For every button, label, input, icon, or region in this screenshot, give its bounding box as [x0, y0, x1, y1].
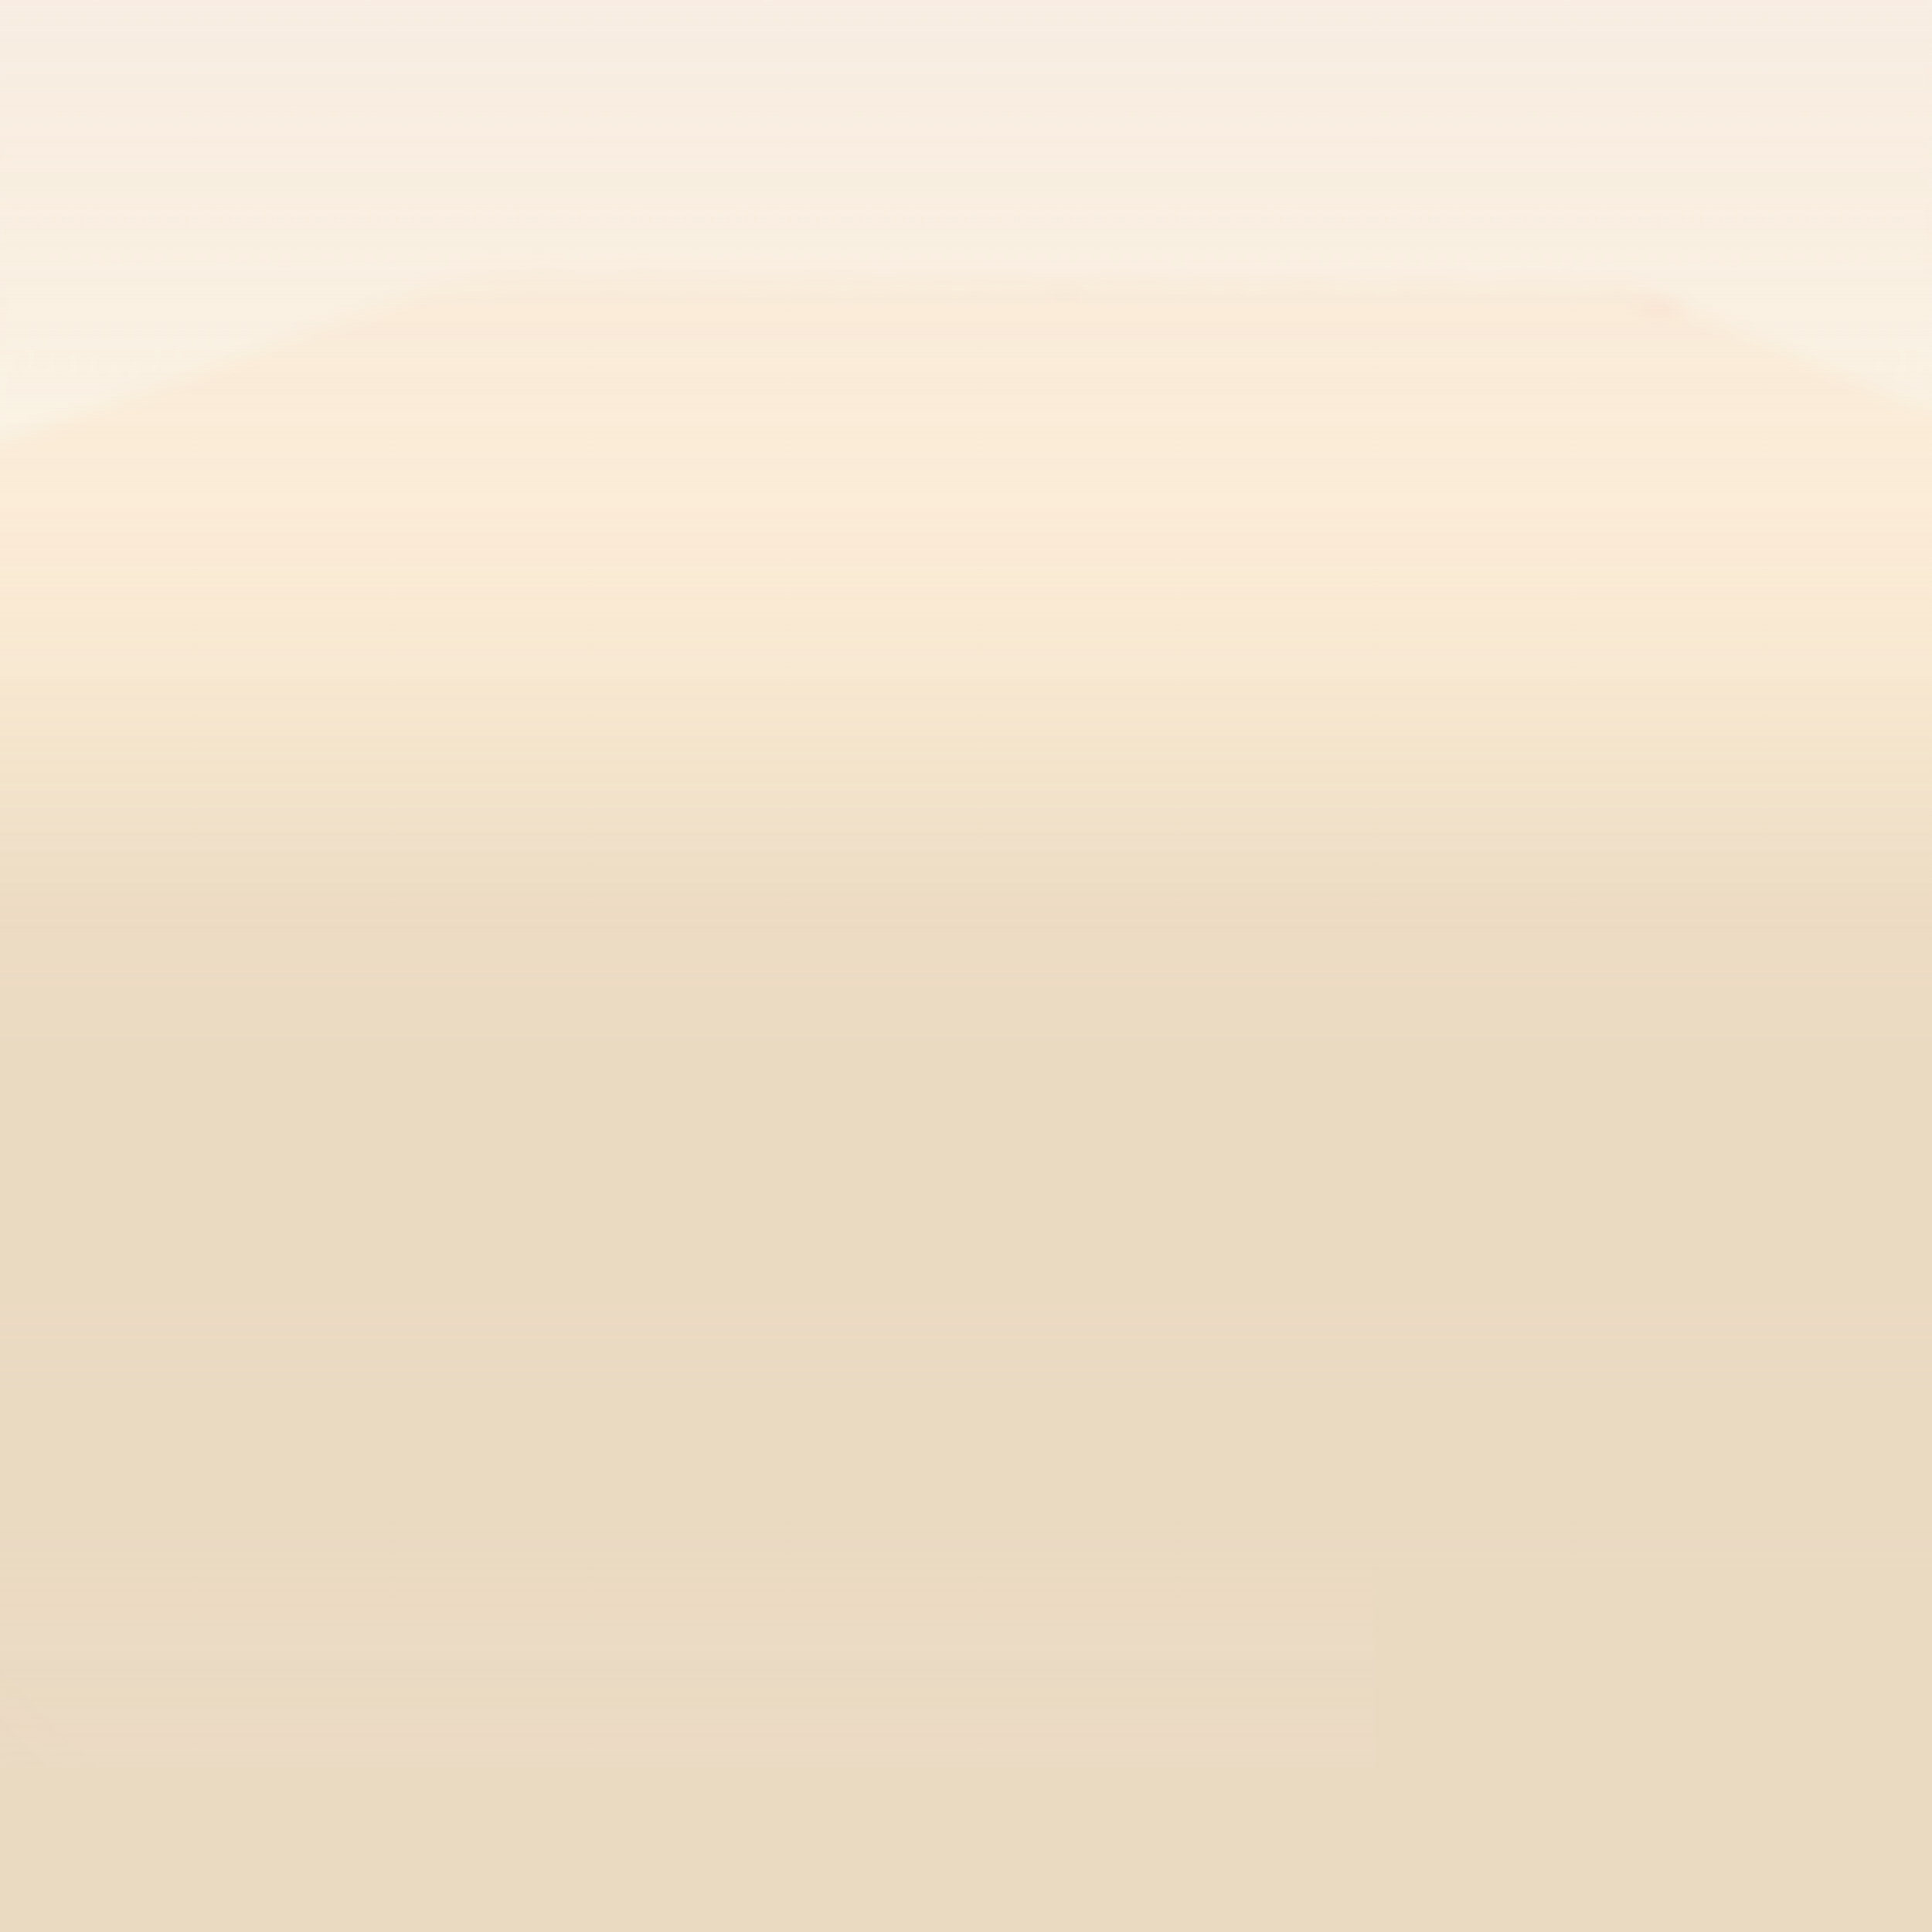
battle-mat-plane: [0, 0, 1631, 1932]
photo-of-battle-mat: { "scene": { "description": "Tilt-shift …: [0, 0, 1932, 1932]
perspective-scene: [0, 0, 1932, 1932]
mat-lighting-gradient: [0, 0, 1631, 1932]
